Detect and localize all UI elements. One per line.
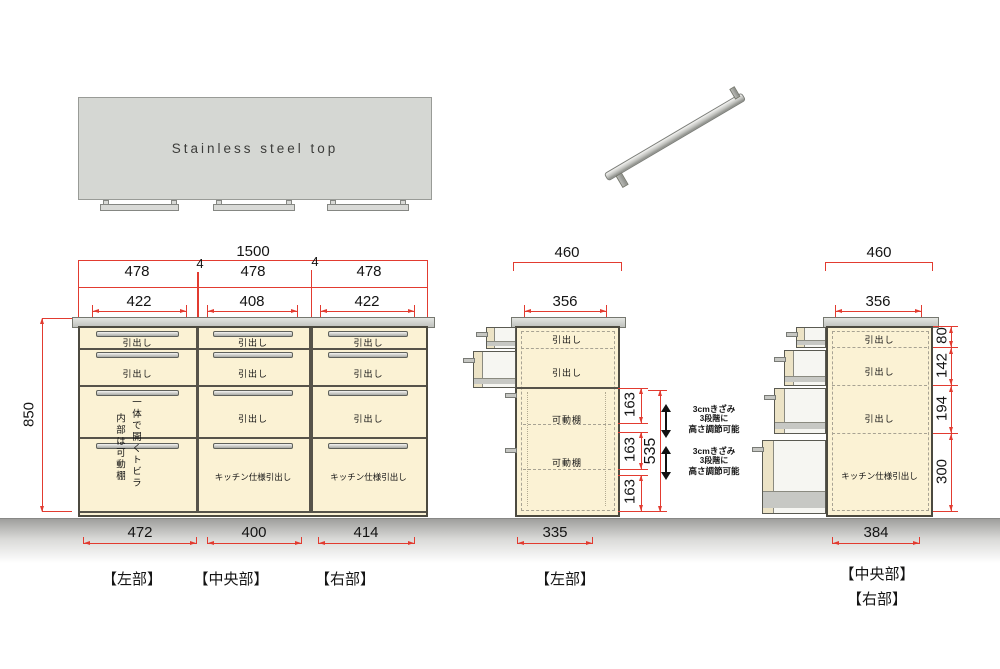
kitchen-drawer-label: キッチン仕様引出し	[198, 471, 308, 483]
arrowhead	[40, 506, 44, 512]
dim-side-inner: 356	[525, 293, 605, 310]
drawer-handle	[96, 352, 179, 358]
dashed-row-line	[832, 433, 927, 434]
panel-foot	[327, 204, 409, 211]
dim-line	[524, 311, 607, 312]
dim-divider: 4	[190, 256, 210, 271]
arrowhead	[319, 541, 325, 545]
open-drawer	[774, 388, 826, 434]
drawer-handle	[328, 443, 408, 449]
arrowhead	[208, 541, 214, 545]
dim-inner: 422	[99, 293, 179, 310]
dim-bottom: 400	[214, 524, 294, 541]
arrowhead	[658, 506, 662, 512]
drawer-label: 引出し	[312, 336, 425, 349]
drawer-label: 引出し	[828, 412, 931, 425]
extension-line	[919, 537, 920, 543]
dim-line	[42, 318, 43, 512]
handle-photo	[598, 88, 783, 193]
section-label: 【左部】	[525, 568, 605, 589]
dim-side-inner: 356	[838, 293, 918, 310]
dim-segment: 194	[934, 379, 951, 439]
extension-line	[42, 511, 72, 512]
dim-side-bottom: 384	[836, 524, 916, 541]
dashed-shelf-line	[523, 469, 611, 470]
kitchen-drawer-label: キッチン仕様引出し	[828, 470, 931, 482]
drawer-label: 引出し	[517, 333, 617, 346]
arrowhead	[321, 309, 327, 313]
arrowhead	[190, 541, 196, 545]
drawer-rail	[487, 341, 515, 346]
shelf-note-line1: 3cmきざみ	[676, 446, 752, 456]
dim-side-total: 535	[642, 421, 660, 481]
shelf-note: 3cmきざみ 3段階に 高さ調節可能	[676, 446, 752, 476]
arrowhead	[639, 388, 643, 394]
dim-side-top: 460	[527, 244, 607, 261]
shelf-pin-holes	[605, 392, 606, 506]
section-label-right: 【右部】	[305, 568, 385, 589]
dashed-row-line	[832, 347, 927, 348]
drawer-handle	[213, 443, 293, 449]
extension-line	[78, 260, 79, 318]
dim-line	[207, 543, 302, 544]
arrowhead	[40, 318, 44, 324]
drawer-handle	[213, 352, 293, 358]
drawer-label: 引出し	[312, 367, 425, 380]
arrowhead	[408, 541, 414, 545]
arrowhead	[295, 541, 301, 545]
arrowhead	[913, 541, 919, 545]
dim-line	[83, 543, 197, 544]
drawer-handle	[328, 390, 408, 396]
drawer-label: 引出し	[312, 412, 425, 425]
dim-segment: 163	[622, 462, 639, 522]
shelf-label: 可動棚	[517, 413, 617, 426]
dashed-row-line	[832, 385, 927, 386]
row-divider	[80, 385, 426, 387]
dim-col: 478	[213, 263, 293, 280]
section-label-right: 【右部】	[827, 588, 927, 609]
drawer-handle	[328, 352, 408, 358]
open-drawer	[473, 351, 516, 388]
shelf-label: 可動棚	[517, 456, 617, 469]
drawer-handle	[213, 390, 293, 396]
arrowhead	[836, 309, 842, 313]
arrowhead	[84, 541, 90, 545]
panel-foot	[100, 204, 179, 211]
extension-line	[592, 537, 593, 543]
handle-peg	[752, 447, 764, 452]
up-down-arrow	[661, 404, 671, 438]
dim-line	[835, 311, 922, 312]
handle-peg	[505, 393, 517, 398]
extension-line	[621, 262, 622, 271]
technical-drawing: Stainless steel top 1500 478 478 478 4 4…	[0, 0, 1000, 669]
extension-line	[932, 262, 933, 271]
drawer-handle	[96, 390, 179, 396]
shelf-note-line2: 3段階に	[676, 414, 752, 424]
open-drawer	[796, 327, 826, 348]
stainless-top-panel: Stainless steel top	[78, 97, 432, 200]
shelf-note-line2: 3段階に	[676, 456, 752, 466]
arrowhead	[658, 390, 662, 396]
dim-line	[825, 262, 933, 263]
extension-line	[196, 537, 197, 543]
shelf-note-line1: 3cmきざみ	[676, 404, 752, 414]
dim-line	[78, 260, 428, 261]
arrowhead	[639, 505, 643, 511]
dim-segment: 300	[934, 442, 951, 502]
extension-line	[825, 262, 826, 271]
drawer-label: 引出し	[81, 367, 194, 380]
dim-col: 478	[97, 263, 177, 280]
dim-line	[92, 311, 187, 312]
panel-foot	[213, 204, 295, 211]
arrowhead	[291, 309, 297, 313]
arrowhead	[586, 541, 592, 545]
shelf-note: 3cmきざみ 3段階に 高さ調節可能	[676, 404, 752, 434]
drawer-rail	[763, 491, 825, 508]
handle-peg	[463, 358, 475, 363]
dim-inner: 408	[212, 293, 292, 310]
dim-bottom: 472	[100, 524, 180, 541]
handle-bar	[604, 92, 746, 181]
dim-bottom: 414	[326, 524, 406, 541]
drawer-label: 引出し	[198, 336, 308, 349]
open-drawer	[762, 440, 826, 514]
drawer-label: 引出し	[828, 365, 931, 378]
handle-peg	[774, 357, 786, 362]
arrowhead	[600, 309, 606, 313]
dim-line	[318, 543, 415, 544]
extension-line	[301, 537, 302, 543]
dim-divider: 4	[305, 254, 325, 269]
arrowhead	[949, 505, 953, 511]
handle-post-right	[729, 86, 740, 99]
fixed-shelf-line	[517, 387, 618, 389]
shelf-pin-holes	[527, 392, 528, 506]
drawer-label: 引出し	[828, 333, 931, 346]
handle-post-left	[616, 172, 629, 188]
dim-side-top: 460	[839, 244, 919, 261]
drawer-label: 引出し	[81, 336, 194, 349]
arrowhead	[93, 309, 99, 313]
open-drawer	[784, 350, 826, 386]
dim-front-height: 850	[21, 385, 38, 445]
dim-line	[78, 287, 428, 288]
up-down-arrow	[661, 446, 671, 480]
handle-peg	[764, 395, 776, 400]
arrowhead	[915, 309, 921, 313]
dim-line	[513, 262, 622, 263]
handle-peg	[476, 332, 488, 337]
arrowhead	[408, 309, 414, 313]
drawer-label: 引出し	[198, 412, 308, 425]
dashed-shelf-line	[521, 348, 613, 349]
section-label-left: 【左部】	[92, 568, 172, 589]
extension-line	[933, 511, 958, 512]
extension-line	[513, 262, 514, 271]
shelf-note-line3: 高さ調節可能	[676, 466, 752, 476]
shelf-note-line3: 高さ調節可能	[676, 424, 752, 434]
dim-line	[832, 543, 920, 544]
dim-col: 478	[329, 263, 409, 280]
arrowhead	[208, 309, 214, 313]
arrowhead	[833, 541, 839, 545]
extension-line	[42, 318, 72, 319]
section-label-center: 【中央部】	[181, 568, 281, 589]
arrowhead	[525, 309, 531, 313]
drawer-rail	[797, 340, 825, 345]
arrowhead	[518, 541, 524, 545]
drawer-rail	[474, 378, 515, 384]
dim-front-total: 1500	[203, 243, 303, 260]
drawer-label: 引出し	[517, 366, 617, 379]
drawer-rail	[785, 376, 825, 382]
arrowhead	[180, 309, 186, 313]
dim-line	[517, 543, 593, 544]
drawer-rail	[775, 422, 825, 429]
dim-line	[320, 311, 415, 312]
extension-line	[414, 537, 415, 543]
handle-peg	[786, 332, 798, 337]
dim-inner: 422	[327, 293, 407, 310]
handle-peg	[505, 448, 517, 453]
drawer-label: 引出し	[198, 367, 308, 380]
dim-line	[207, 311, 298, 312]
stainless-top-label: Stainless steel top	[79, 141, 431, 156]
kitchen-drawer-label: キッチン仕様引出し	[312, 471, 425, 483]
extension-line	[427, 260, 428, 318]
dim-side-bottom: 335	[515, 524, 595, 541]
open-drawer	[486, 327, 516, 349]
section-label-center: 【中央部】	[827, 563, 927, 584]
